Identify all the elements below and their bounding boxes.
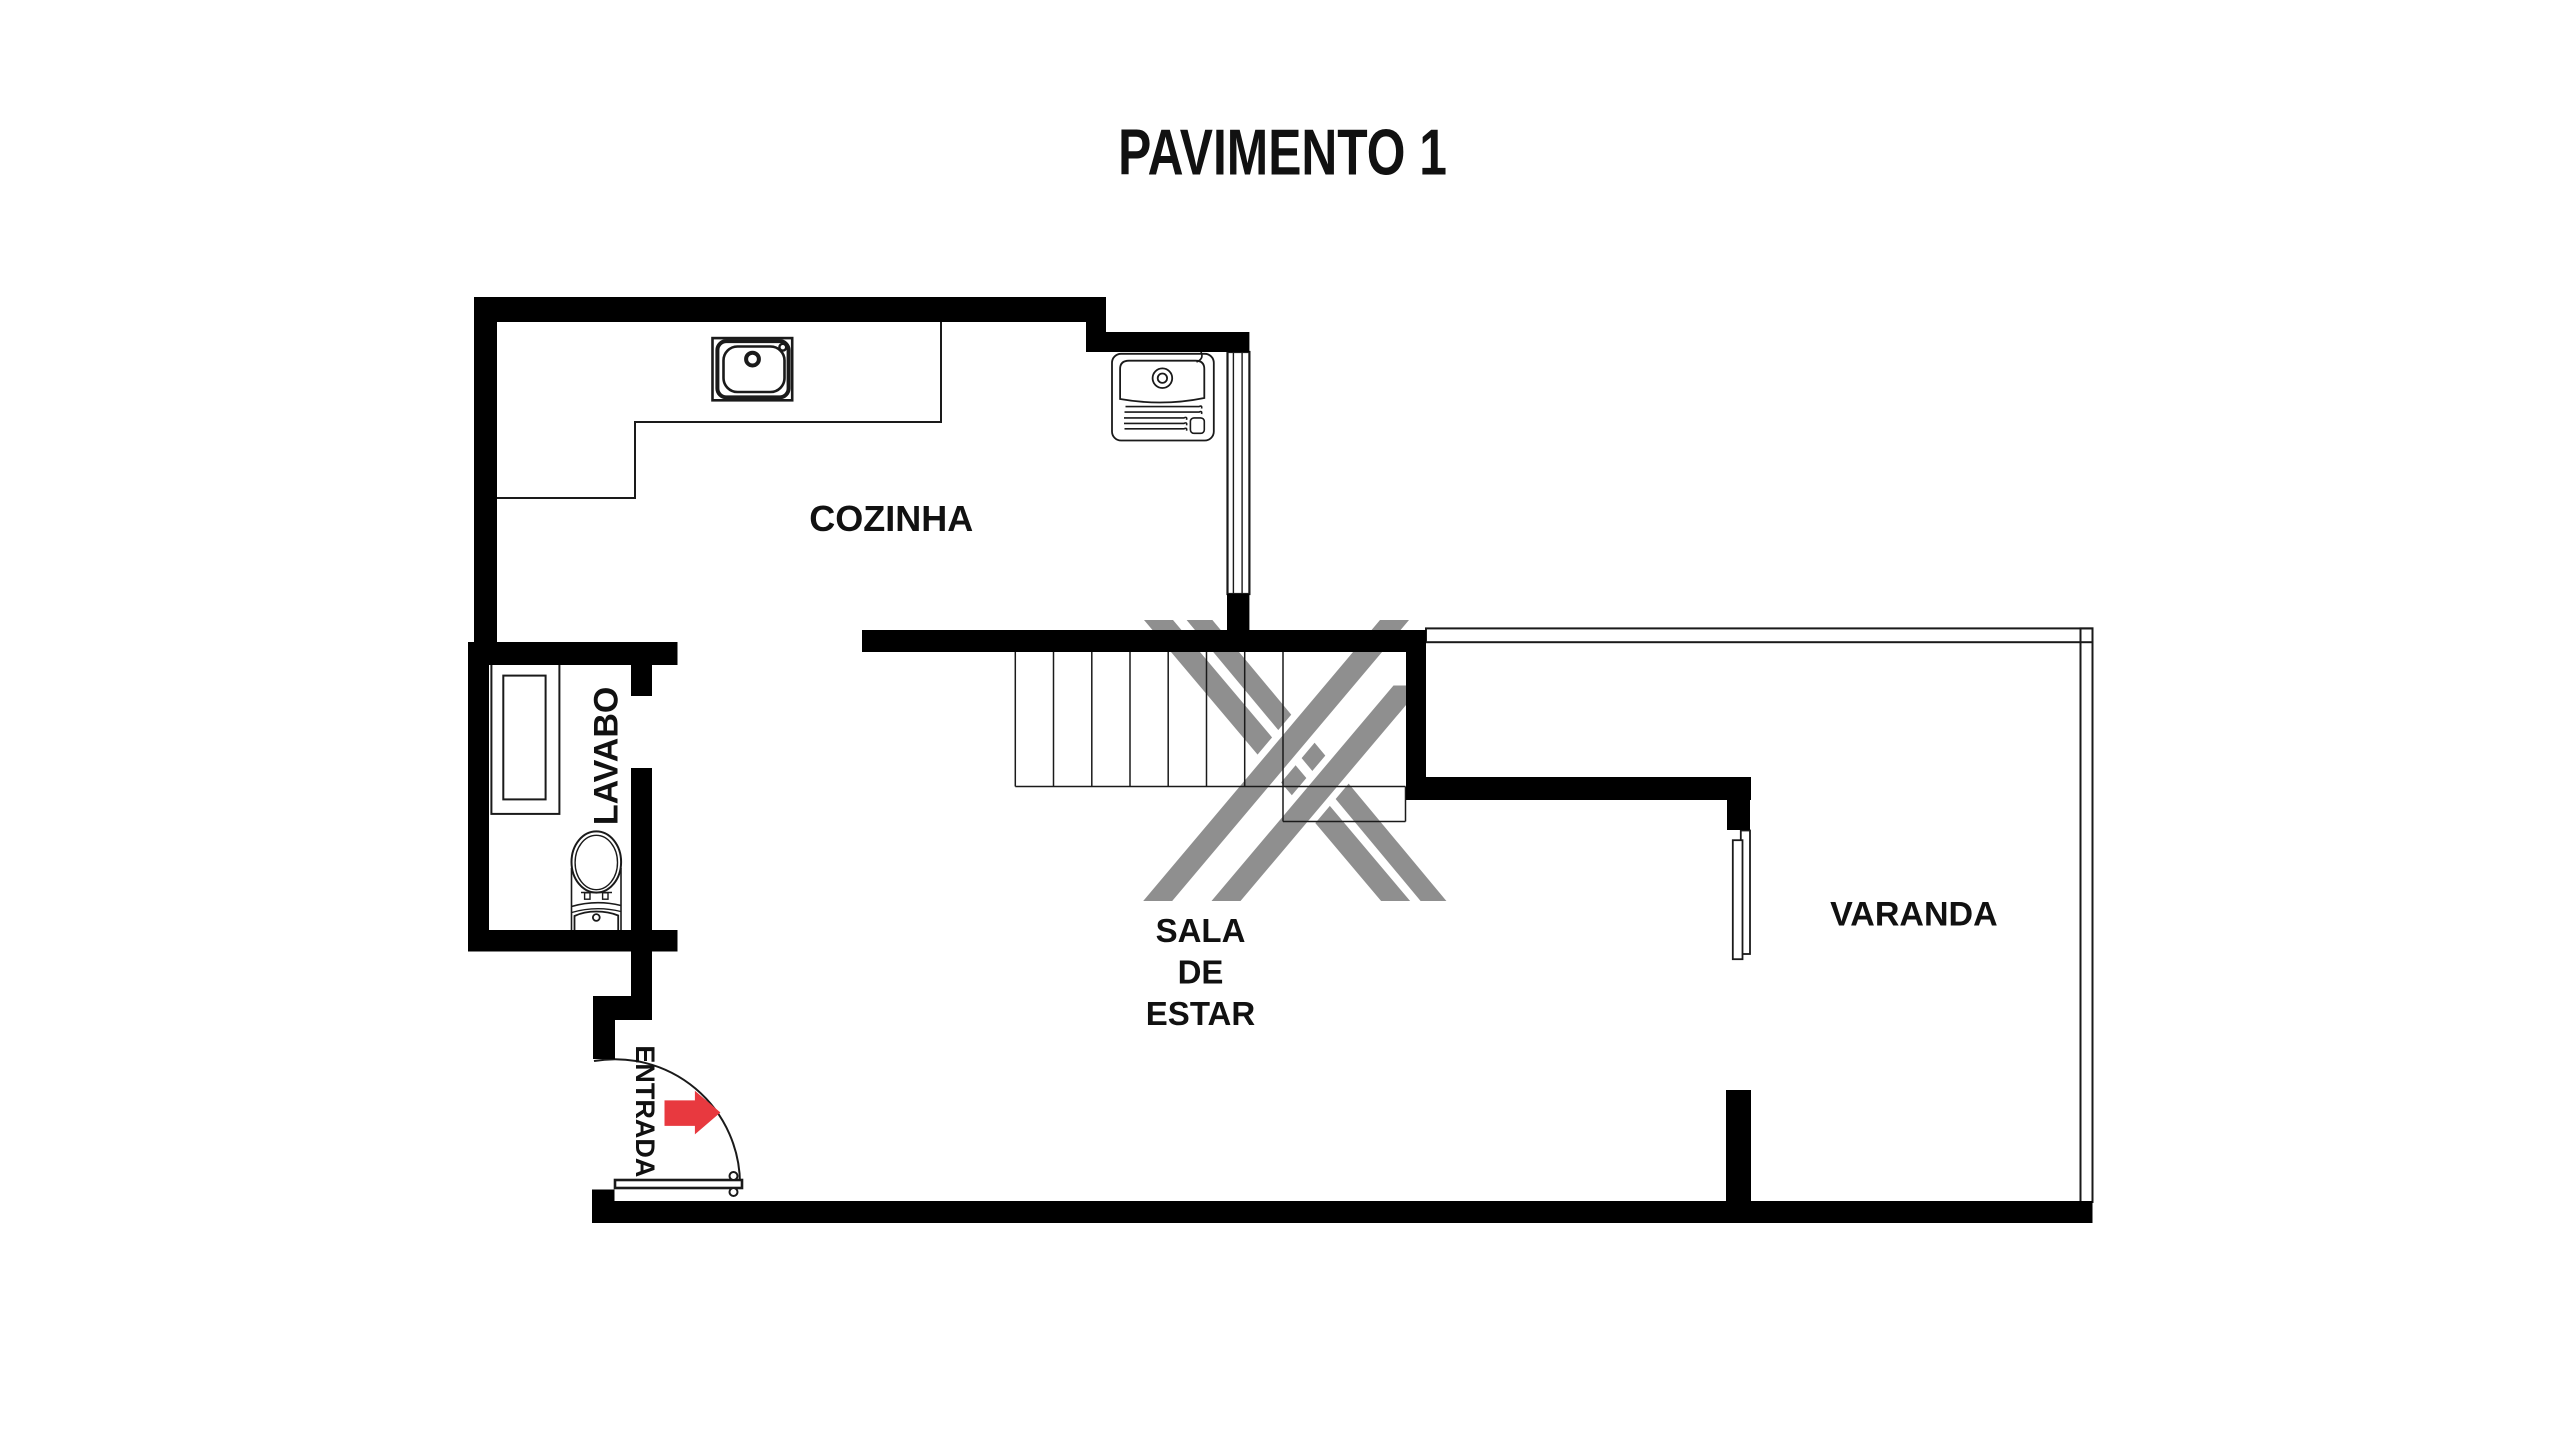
svg-text:LAVABO: LAVABO: [588, 687, 626, 826]
svg-text:COZINHA: COZINHA: [809, 498, 973, 539]
svg-text:DE: DE: [1178, 954, 1224, 991]
svg-text:VARANDA: VARANDA: [1830, 895, 1997, 933]
svg-text:SALA: SALA: [1156, 912, 1246, 949]
svg-text:ESTAR: ESTAR: [1146, 995, 1256, 1032]
svg-text:PAVIMENTO 1: PAVIMENTO 1: [1118, 117, 1447, 189]
svg-text:ENTRADA: ENTRADA: [630, 1045, 660, 1177]
